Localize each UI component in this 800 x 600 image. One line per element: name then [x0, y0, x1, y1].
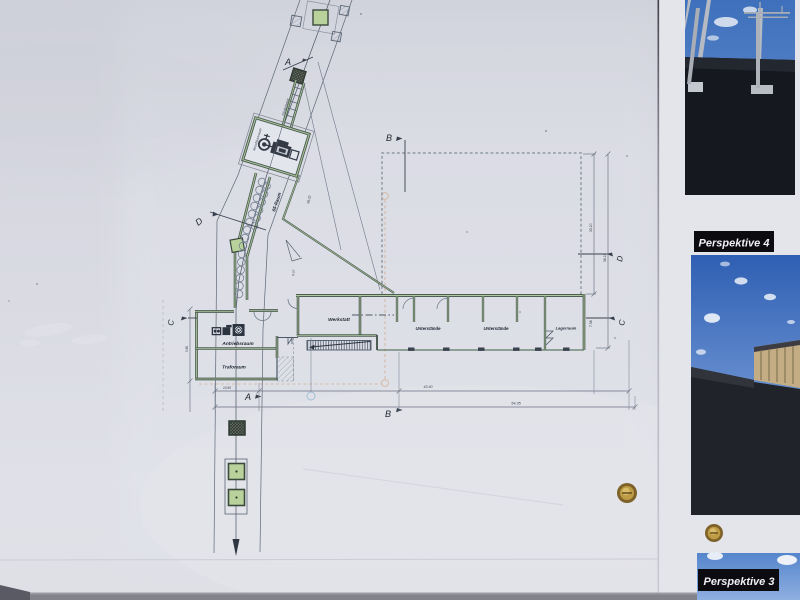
svg-text:Werkstatt: Werkstatt [328, 317, 350, 323]
svg-text:35.20: 35.20 [589, 223, 593, 232]
svg-text:Unterstände: Unterstände [483, 326, 509, 331]
svg-text:B: B [386, 133, 392, 143]
svg-text:Lagerraum: Lagerraum [556, 326, 577, 331]
svg-text:Perspektive 4: Perspektive 4 [699, 238, 770, 250]
svg-text:A: A [284, 57, 291, 67]
svg-text:Unterstände: Unterstände [415, 326, 441, 331]
svg-text:Perspektive 3: Perspektive 3 [704, 576, 775, 588]
svg-text:Antriebsraum: Antriebsraum [221, 341, 254, 347]
svg-text:9.80: 9.80 [185, 346, 189, 352]
svg-text:38.15: 38.15 [603, 253, 607, 262]
svg-text:B: B [385, 409, 391, 419]
svg-text:A: A [244, 392, 251, 402]
svg-text:Traforaum: Traforaum [222, 365, 246, 371]
svg-text:10.90: 10.90 [223, 386, 231, 390]
svg-text:7.98: 7.98 [589, 320, 593, 327]
svg-text:54.35: 54.35 [511, 402, 521, 406]
svg-text:43.40: 43.40 [424, 385, 433, 389]
